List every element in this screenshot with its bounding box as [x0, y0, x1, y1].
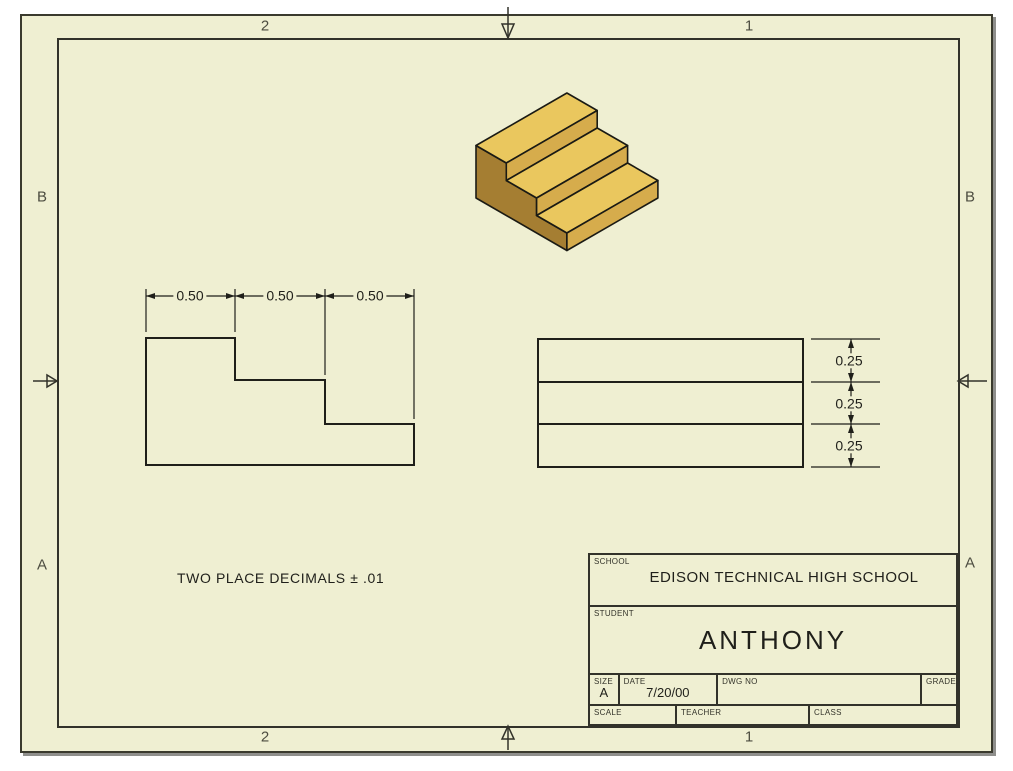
arrowhead-icon — [226, 293, 235, 299]
front-view-outline — [146, 338, 414, 465]
grade-label: GRADE — [922, 675, 956, 686]
arrowhead-icon — [848, 458, 854, 467]
arrowhead-icon — [235, 293, 244, 299]
title-block-row-4: SCALE TEACHER CLASS — [590, 704, 956, 724]
student-name: ANTHONY — [590, 607, 956, 656]
page-background: 2 1 2 1 B A B A — [0, 0, 1013, 771]
dimension-side-3: 0.25 — [832, 438, 865, 453]
dwg-no-label: DWG NO — [718, 675, 920, 686]
arrowhead-icon — [848, 415, 854, 424]
scale-label: SCALE — [590, 706, 675, 717]
title-block-student-row: STUDENT ANTHONY — [590, 605, 956, 673]
grade-cell: GRADE — [922, 675, 956, 704]
class-label: CLASS — [810, 706, 956, 717]
arrowhead-icon — [848, 373, 854, 382]
dimension-front-2: 0.50 — [263, 288, 296, 303]
dimension-front-1: 0.50 — [173, 288, 206, 303]
arrowhead-icon — [848, 424, 854, 433]
teacher-cell: TEACHER — [677, 706, 810, 724]
date-value: 7/20/00 — [620, 686, 717, 699]
arrowhead-icon — [405, 293, 414, 299]
title-block-row-3: SIZE A DATE 7/20/00 DWG NO GRADE — [590, 673, 956, 704]
arrowhead-icon — [848, 382, 854, 391]
front-view — [146, 289, 414, 465]
isometric-view — [476, 93, 658, 251]
arrowhead-icon — [848, 339, 854, 348]
title-block-school-row: SCHOOL EDISON TECHNICAL HIGH SCHOOL — [590, 555, 956, 605]
center-mark-left — [33, 375, 57, 387]
dwg-no-cell: DWG NO — [718, 675, 922, 704]
tolerance-note: TWO PLACE DECIMALS ± .01 — [177, 570, 384, 586]
size-cell: SIZE A — [590, 675, 620, 704]
dimension-side-2: 0.25 — [832, 396, 865, 411]
title-block: SCHOOL EDISON TECHNICAL HIGH SCHOOL STUD… — [588, 553, 958, 726]
student-label: STUDENT — [590, 607, 634, 618]
teacher-label: TEACHER — [677, 706, 808, 717]
scale-cell: SCALE — [590, 706, 677, 724]
arrowhead-icon — [316, 293, 325, 299]
center-mark-top — [502, 7, 514, 38]
arrowhead-icon — [146, 293, 155, 299]
size-value: A — [590, 686, 618, 699]
arrowhead-icon — [325, 293, 334, 299]
school-label: SCHOOL — [590, 555, 630, 566]
dimension-front-3: 0.50 — [353, 288, 386, 303]
front-view-extension-lines — [146, 289, 414, 419]
side-view — [538, 339, 880, 467]
dimension-side-1: 0.25 — [832, 353, 865, 368]
center-mark-bottom — [502, 726, 514, 750]
side-view-step-lines — [538, 382, 803, 424]
school-name: EDISON TECHNICAL HIGH SCHOOL — [590, 555, 956, 586]
class-cell: CLASS — [810, 706, 956, 724]
center-mark-right — [958, 375, 987, 387]
date-cell: DATE 7/20/00 — [620, 675, 719, 704]
side-view-outline — [538, 339, 803, 467]
